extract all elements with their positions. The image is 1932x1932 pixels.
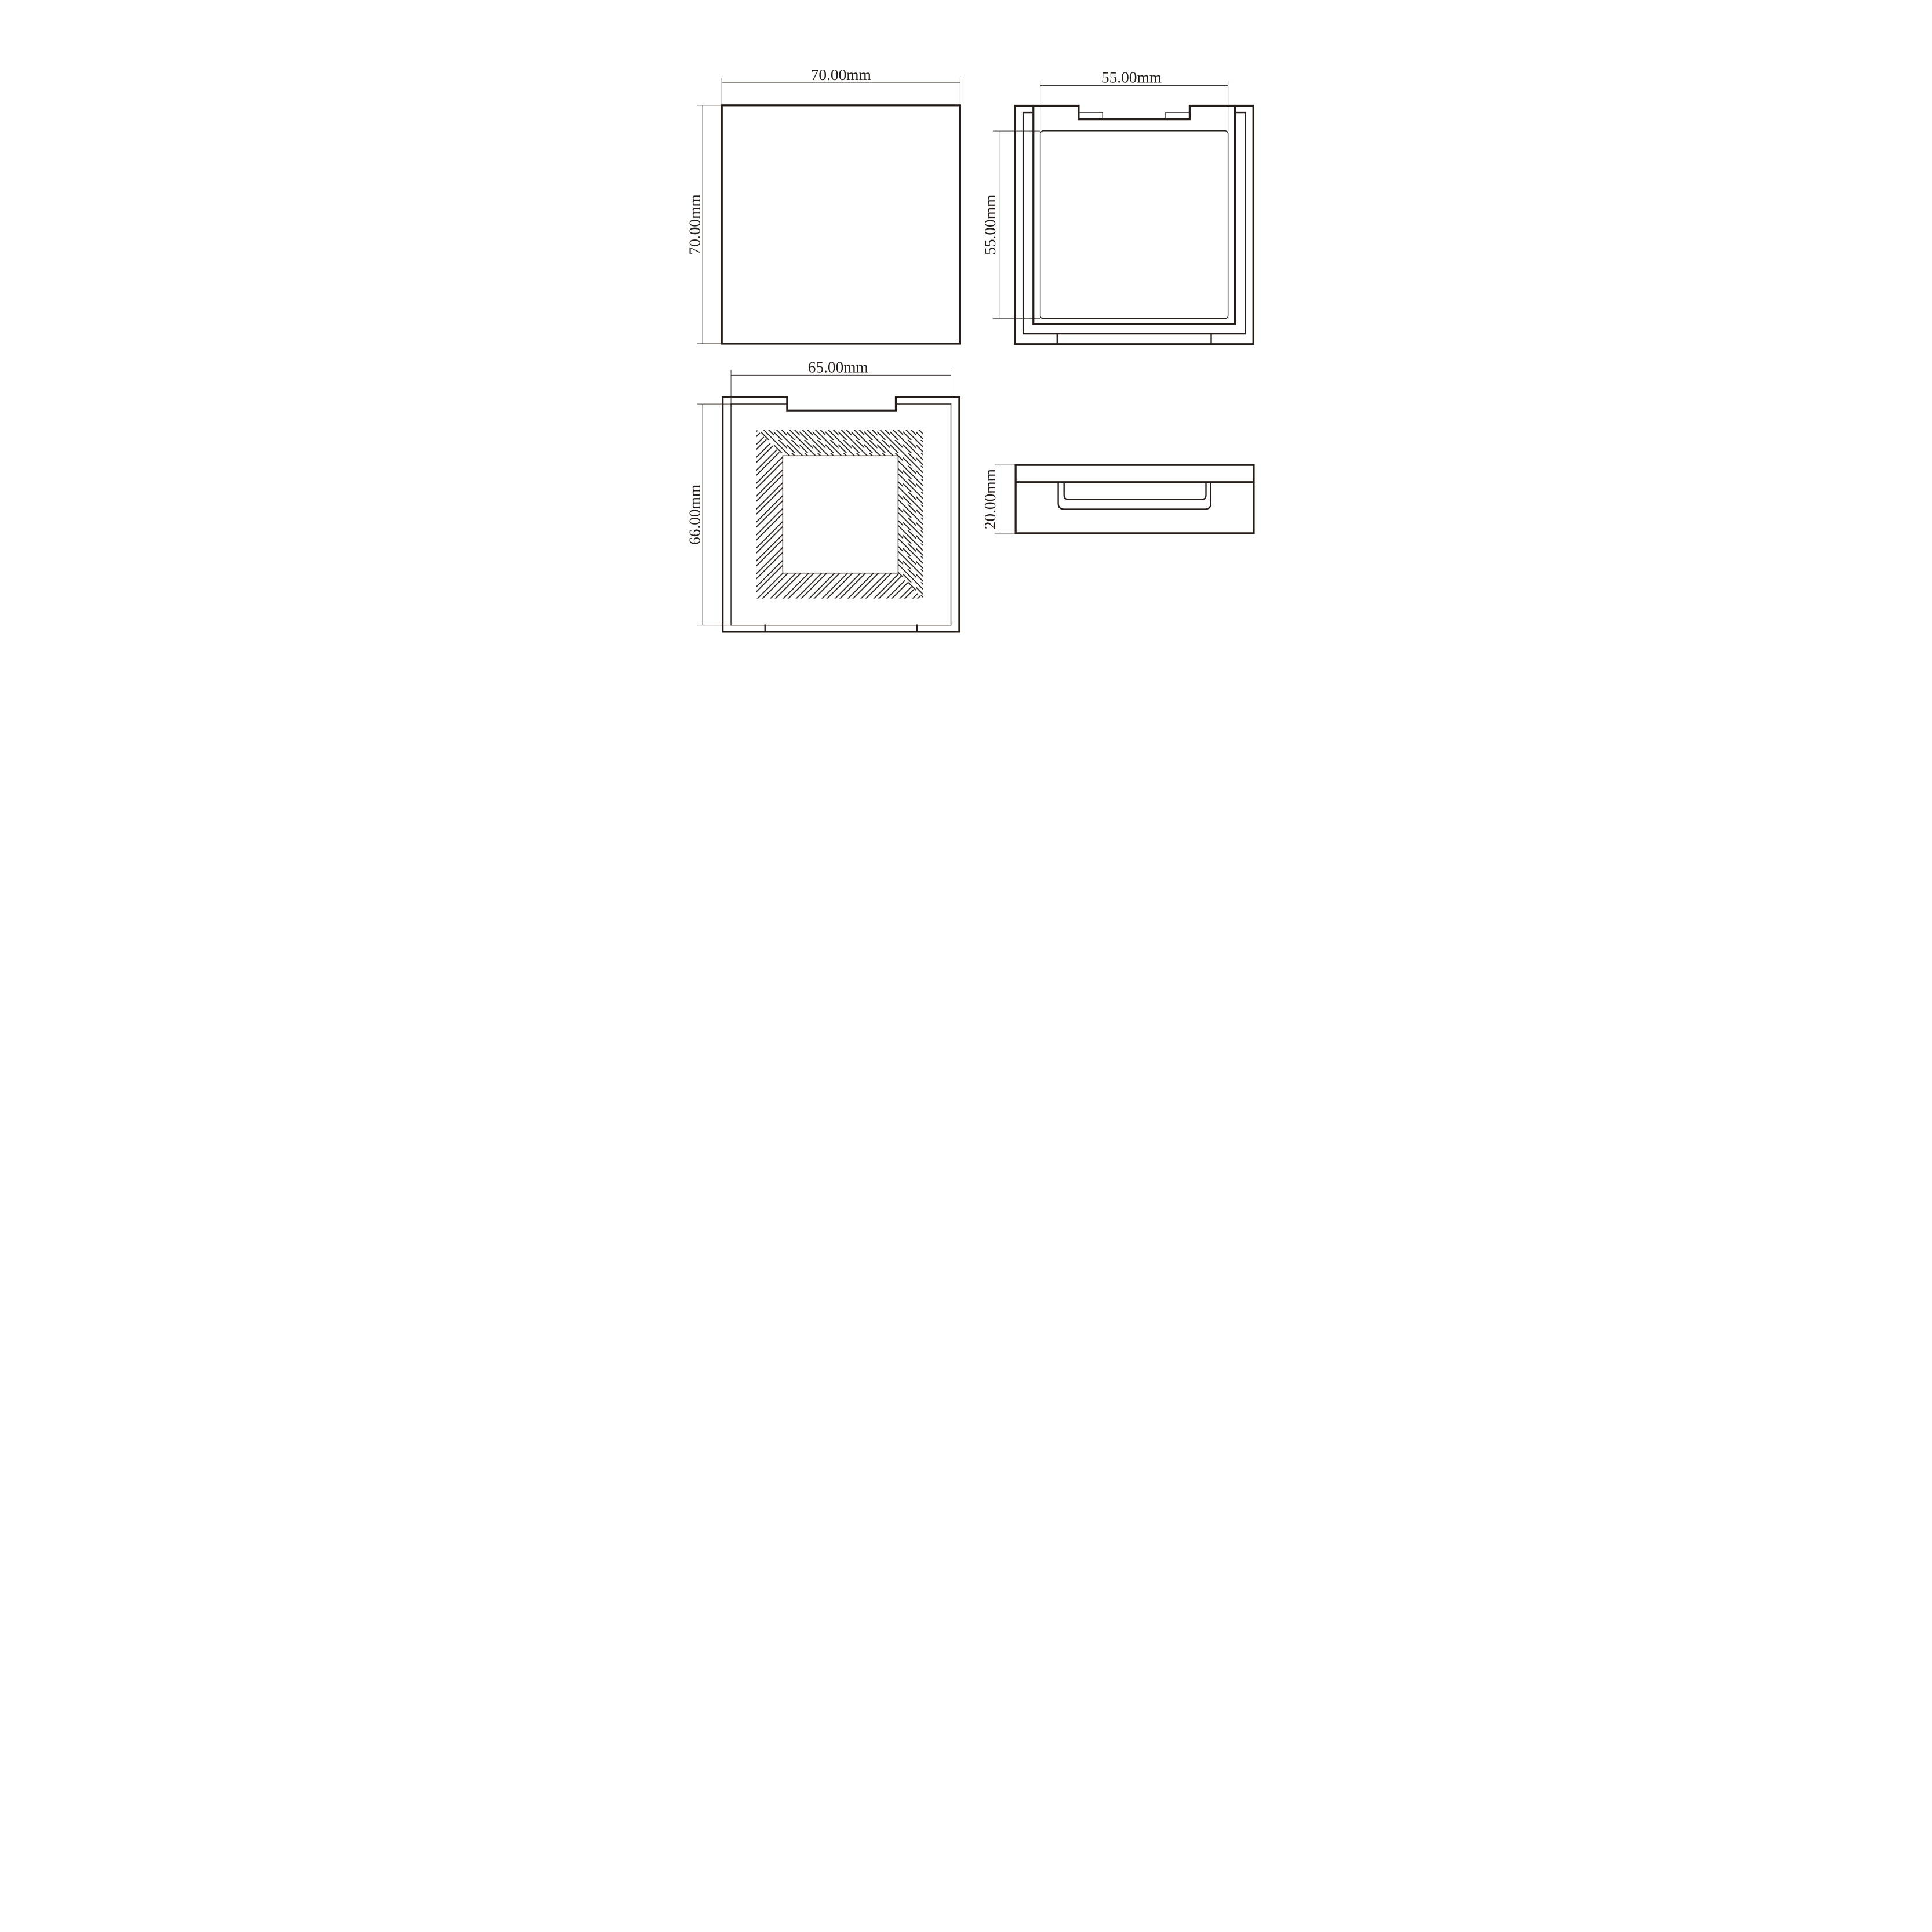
hatch-panel-right — [898, 430, 923, 599]
hatch-region — [756, 430, 923, 599]
front-width-dimension: 70.00mm — [722, 66, 960, 105]
hatch-panel-left — [756, 430, 782, 599]
liner-outline — [1023, 112, 1245, 334]
inner-width-label: 55.00mm — [1101, 69, 1161, 86]
side-thickness-dimension: 20.00mm — [981, 465, 1016, 533]
notch-ledge-left — [1078, 112, 1102, 119]
side-thickness-label: 20.00mm — [981, 469, 999, 529]
back-height-dimension: 66.00mm — [686, 404, 731, 625]
back-view: 65.00mm 66.00mm — [686, 358, 959, 632]
technical-drawing-sheet: 70.00mm 70.00mm 55.00mm — [618, 0, 1314, 696]
side-groove-outer — [1058, 482, 1210, 510]
front-width-label: 70.00mm — [810, 66, 871, 83]
inner-view-outer-outline — [1015, 106, 1253, 344]
drawing-svg: 70.00mm 70.00mm 55.00mm — [618, 0, 1314, 696]
inner-height-label: 55.00mm — [981, 195, 999, 255]
side-groove-inner — [1064, 482, 1206, 500]
inner-height-dimension: 55.00mm — [981, 131, 1040, 319]
front-outer-outline — [722, 105, 960, 344]
back-width-label: 65.00mm — [807, 358, 868, 376]
hatch-inner-window-outline — [783, 456, 898, 573]
inner-width-dimension: 55.00mm — [1040, 69, 1228, 131]
notch-ledge-right — [1166, 112, 1189, 119]
side-view: 20.00mm — [981, 465, 1254, 533]
front-height-dimension: 70.00mm — [686, 105, 722, 344]
front-view: 70.00mm 70.00mm — [686, 66, 960, 344]
inner-face-view: 55.00mm 55.00mm — [981, 69, 1253, 344]
hatch-panel-bottom — [756, 573, 923, 599]
front-height-label: 70.00mm — [686, 194, 703, 254]
back-height-label: 66.00mm — [686, 485, 703, 545]
rounded-opening-outline — [1040, 131, 1228, 319]
hatch-panel-top — [756, 430, 923, 456]
inner-wall-outline — [1033, 106, 1235, 324]
